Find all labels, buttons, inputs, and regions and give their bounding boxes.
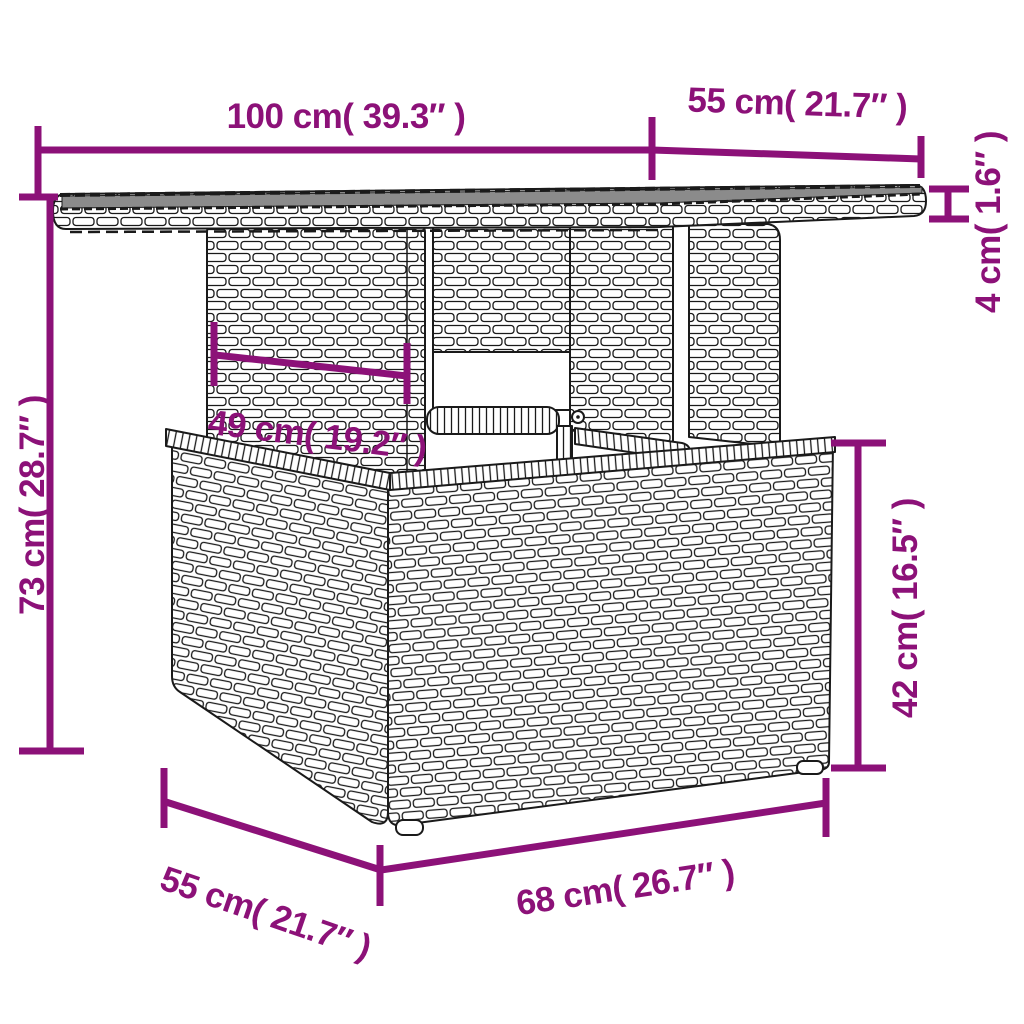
dimension-label: 68 cm( 26.7″ ) <box>514 852 737 923</box>
dimension-overall-height: 73 cm( 28.7″ ) <box>13 197 84 751</box>
pedestal-right-outer-panel <box>689 224 780 447</box>
base-front-face <box>388 442 833 825</box>
pedestal-panel-above-window <box>433 224 570 352</box>
dimension-top-depth: 55 cm( 21.7″ ) <box>652 81 921 178</box>
table-top <box>53 185 926 232</box>
dimension-label: 100 cm( 39.3″ ) <box>227 97 466 136</box>
pedestal-right-inner-panel <box>570 224 673 450</box>
base-left-face <box>172 437 388 824</box>
dimension-line <box>166 802 381 870</box>
window-sill-roll <box>427 407 559 434</box>
base-foot-left <box>396 820 423 835</box>
dimension-base-height: 42 cm( 16.5″ ) <box>831 443 925 768</box>
diagram-canvas: 100 cm( 39.3″ ) 55 cm( 21.7″ ) 4 cm( 1.6… <box>0 0 1024 1024</box>
dimension-label: 55 cm( 21.7″ ) <box>687 81 908 127</box>
dimension-label: 42 cm( 16.5″ ) <box>886 498 925 718</box>
table-illustration <box>53 185 926 835</box>
product-dimension-image: 100 cm( 39.3″ ) 55 cm( 21.7″ ) 4 cm( 1.6… <box>0 0 1024 1024</box>
base-foot-right <box>797 761 823 774</box>
base <box>166 429 835 835</box>
pedestal-window-opening <box>433 352 570 410</box>
dimension-top-thickness: 4 cm( 1.6″ ) <box>929 131 1008 313</box>
dimension-label: 55 cm( 21.7″ ) <box>155 859 376 967</box>
dimension-label: 4 cm( 1.6″ ) <box>969 131 1008 313</box>
dimension-top-width: 100 cm( 39.3″ ) <box>38 97 652 199</box>
fitting-screw-center <box>576 415 580 419</box>
dimension-line <box>652 150 921 159</box>
dimension-label: 73 cm( 28.7″ ) <box>13 395 52 615</box>
